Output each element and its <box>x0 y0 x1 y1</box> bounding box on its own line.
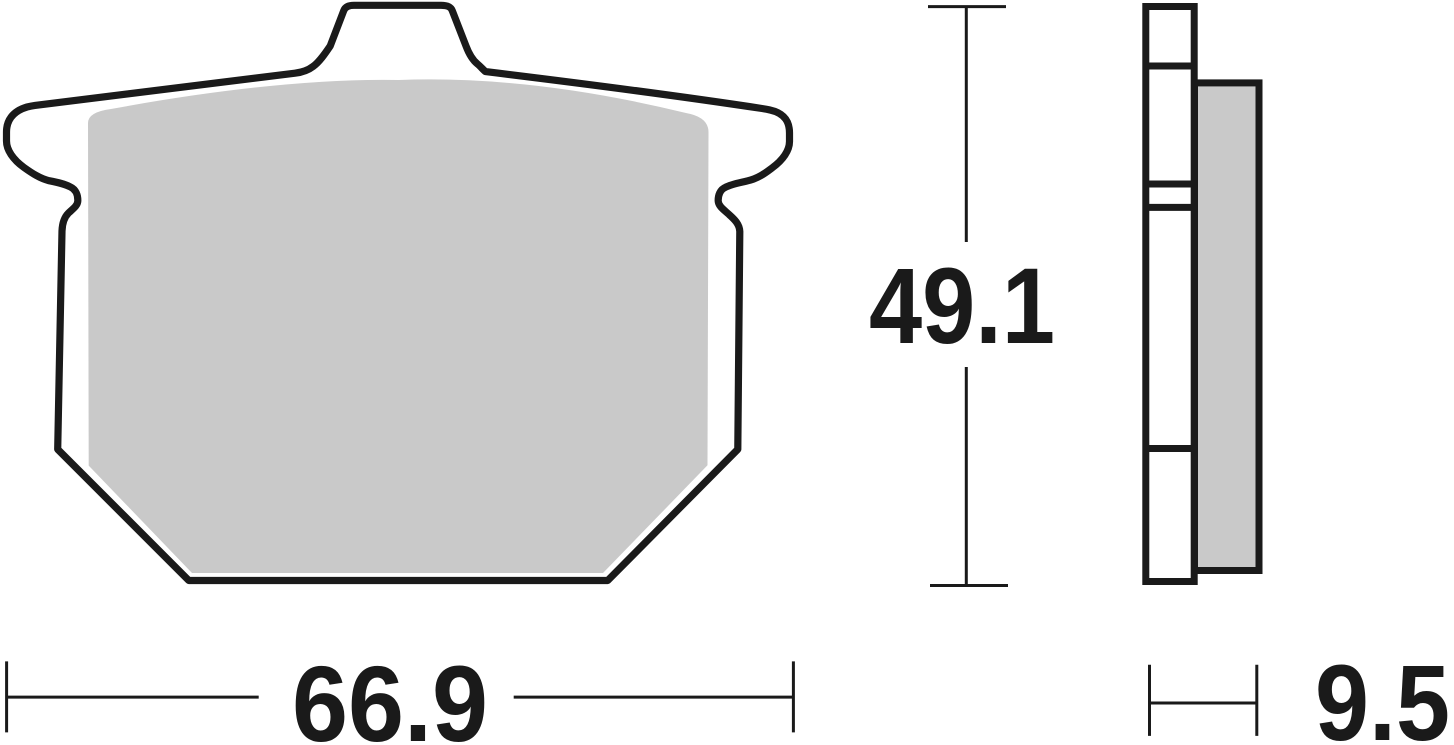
svg-text:66.9: 66.9 <box>292 643 488 745</box>
svg-text:9.5: 9.5 <box>1315 642 1450 745</box>
svg-text:49.1: 49.1 <box>869 245 1055 366</box>
